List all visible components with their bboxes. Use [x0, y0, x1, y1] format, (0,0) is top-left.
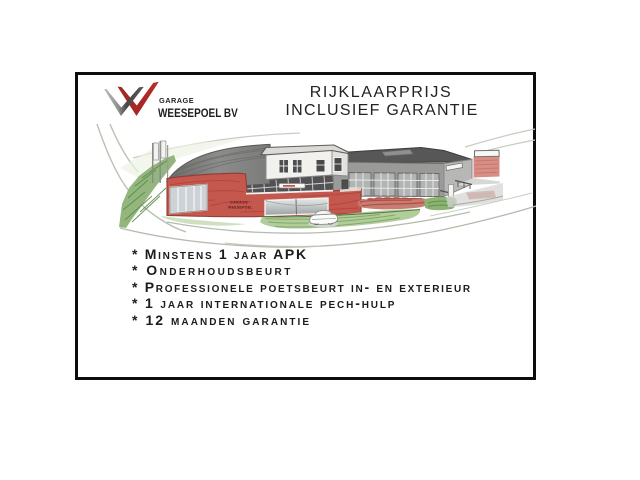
svg-text:WEESEPOEL: WEESEPOEL: [228, 205, 253, 209]
svg-text:GARAGE: GARAGE: [230, 201, 248, 205]
